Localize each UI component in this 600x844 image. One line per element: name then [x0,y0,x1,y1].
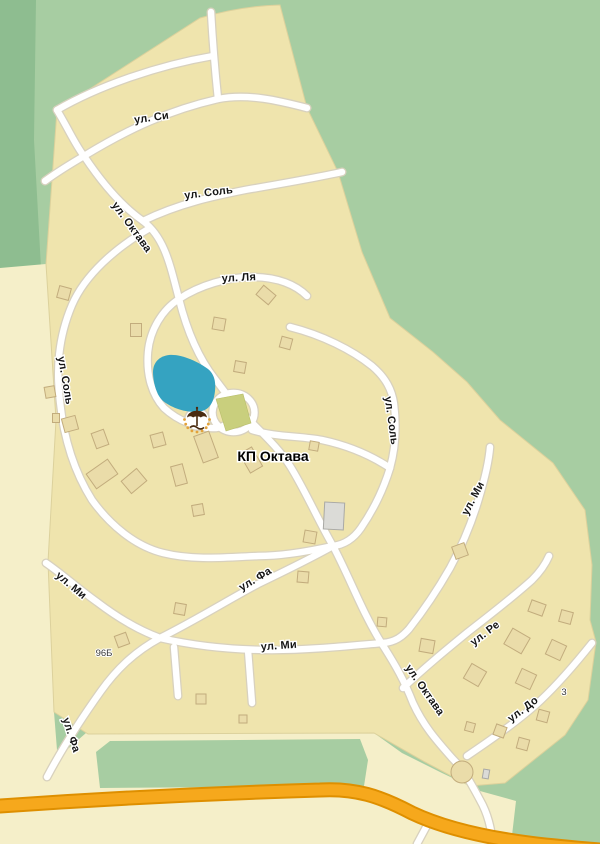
building [559,610,574,625]
building [482,769,489,779]
building [377,617,387,627]
street-label-lya[interactable]: ул. Ля [221,271,256,285]
building [536,709,549,722]
building [212,317,226,331]
plot-number-3: 3 [561,687,566,698]
building [174,603,187,616]
building [239,715,247,723]
building [419,638,435,653]
green-meadow-strip [96,739,368,788]
building [309,441,319,451]
map-canvas[interactable]: ул. Си ул. Соль ул. Ля ул. Октава ул. Со… [0,0,600,844]
building [53,414,60,423]
building [57,286,72,301]
building [323,502,344,530]
building [279,336,292,349]
building [297,571,309,583]
building [192,504,205,517]
building [303,530,317,544]
building [150,432,166,448]
street-label-mi-center[interactable]: ул. Ми [260,639,297,653]
plot-number-96b: 96Б [96,648,113,659]
building [234,361,247,374]
road-stub-south-1[interactable] [174,647,178,696]
settlement-label[interactable]: КП Октава [237,448,308,464]
building [516,737,529,750]
building [196,694,206,704]
building [44,386,56,399]
road-stub-south-2[interactable] [248,650,252,703]
building [464,721,475,732]
building [451,761,473,783]
building [131,324,142,337]
building [61,415,78,432]
